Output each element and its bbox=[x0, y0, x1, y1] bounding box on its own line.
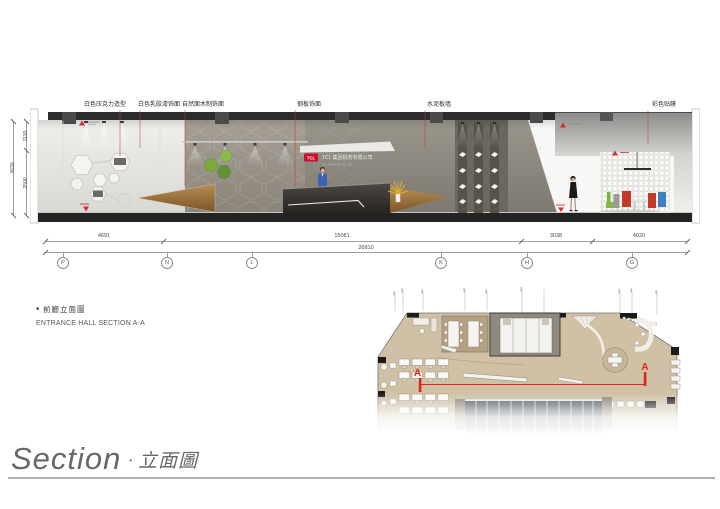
product-display-wall bbox=[456, 122, 501, 213]
drawing-sheet: { "section": { "annotations": [ "白色压克力造型… bbox=[0, 0, 720, 509]
right-wall-cut bbox=[692, 109, 700, 223]
dim-total: 26810 bbox=[358, 245, 373, 251]
caption-title-en: ENTRANCE HALL SECTION A-A bbox=[36, 320, 145, 327]
grid-bubble-p: P bbox=[57, 257, 69, 269]
sheet-title: Section·立面圖 bbox=[11, 441, 198, 477]
left-wall-cut bbox=[30, 109, 38, 223]
vdim-segment-2: 2500 bbox=[23, 177, 29, 188]
grid-bubble-l: L bbox=[246, 257, 258, 269]
section-marker-a-right: A bbox=[641, 362, 648, 373]
caption-bullet: ■ bbox=[36, 306, 39, 312]
section-rendering: TCL TCL 集团财务有限公司 TCL FINANCE CO.,LTD bbox=[30, 108, 700, 226]
dim-segment-2: 15081 bbox=[334, 233, 349, 239]
section-marker-a-left: A bbox=[414, 368, 421, 379]
company-name-en: TCL FINANCE CO.,LTD bbox=[322, 163, 352, 167]
sheet-title-separator: · bbox=[127, 449, 134, 471]
vdim-segment-1: 1130 bbox=[23, 131, 29, 142]
caption-title-zh: 前廳立面圖 bbox=[43, 305, 86, 314]
tcl-logo-text: TCL bbox=[307, 156, 316, 161]
dim-segment-3: 3038 bbox=[550, 233, 562, 239]
dim-segment-1: 4691 bbox=[98, 233, 110, 239]
vdim-total: 3630 bbox=[10, 162, 16, 173]
sheet-title-rule bbox=[8, 477, 715, 479]
plan-meeting-room bbox=[442, 316, 488, 352]
grid-bubble-k: K bbox=[435, 257, 447, 269]
company-name-zh: TCL 集团财务有限公司 bbox=[322, 154, 373, 161]
grid-bubble-h: H bbox=[521, 257, 533, 269]
grid-bubble-n: N bbox=[161, 257, 173, 269]
view-caption: ■前廳立面圖 ENTRANCE HALL SECTION A-A bbox=[36, 299, 145, 327]
sheet-title-zh: 立面圖 bbox=[138, 451, 198, 472]
grid-bubble-g: G bbox=[626, 257, 638, 269]
floor-plan-key: A A bbox=[375, 285, 687, 437]
section-elevation-view: 白色压克力造型 白色乳胶漆饰面 自然面木制饰面 钢板饰面 水泥板墙 彩色贴膜 bbox=[0, 0, 720, 230]
plan-dimension-ticks bbox=[394, 287, 657, 315]
plan-core bbox=[490, 313, 560, 356]
dim-segment-4: 4020 bbox=[633, 233, 645, 239]
sheet-title-en: Section bbox=[11, 441, 121, 476]
